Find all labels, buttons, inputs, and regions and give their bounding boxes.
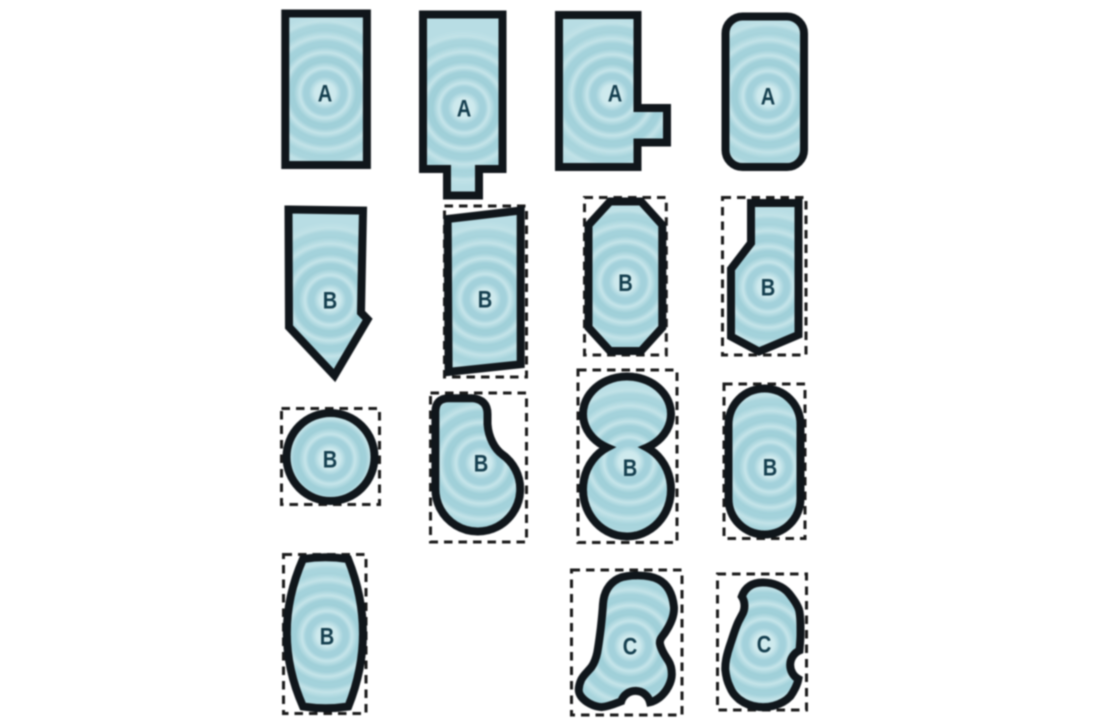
svg-text:B: B [320, 624, 335, 651]
svg-text:B: B [623, 455, 638, 482]
svg-text:C: C [757, 632, 772, 659]
svg-text:B: B [323, 288, 338, 315]
svg-text:A: A [608, 81, 623, 108]
svg-text:B: B [761, 275, 776, 302]
svg-text:B: B [323, 447, 338, 474]
svg-text:B: B [478, 287, 493, 314]
svg-text:A: A [318, 81, 333, 108]
svg-text:B: B [618, 270, 633, 297]
svg-text:A: A [457, 96, 472, 123]
svg-text:B: B [474, 451, 489, 478]
svg-text:A: A [761, 84, 776, 111]
svg-text:B: B [763, 455, 778, 482]
svg-text:C: C [623, 634, 638, 661]
